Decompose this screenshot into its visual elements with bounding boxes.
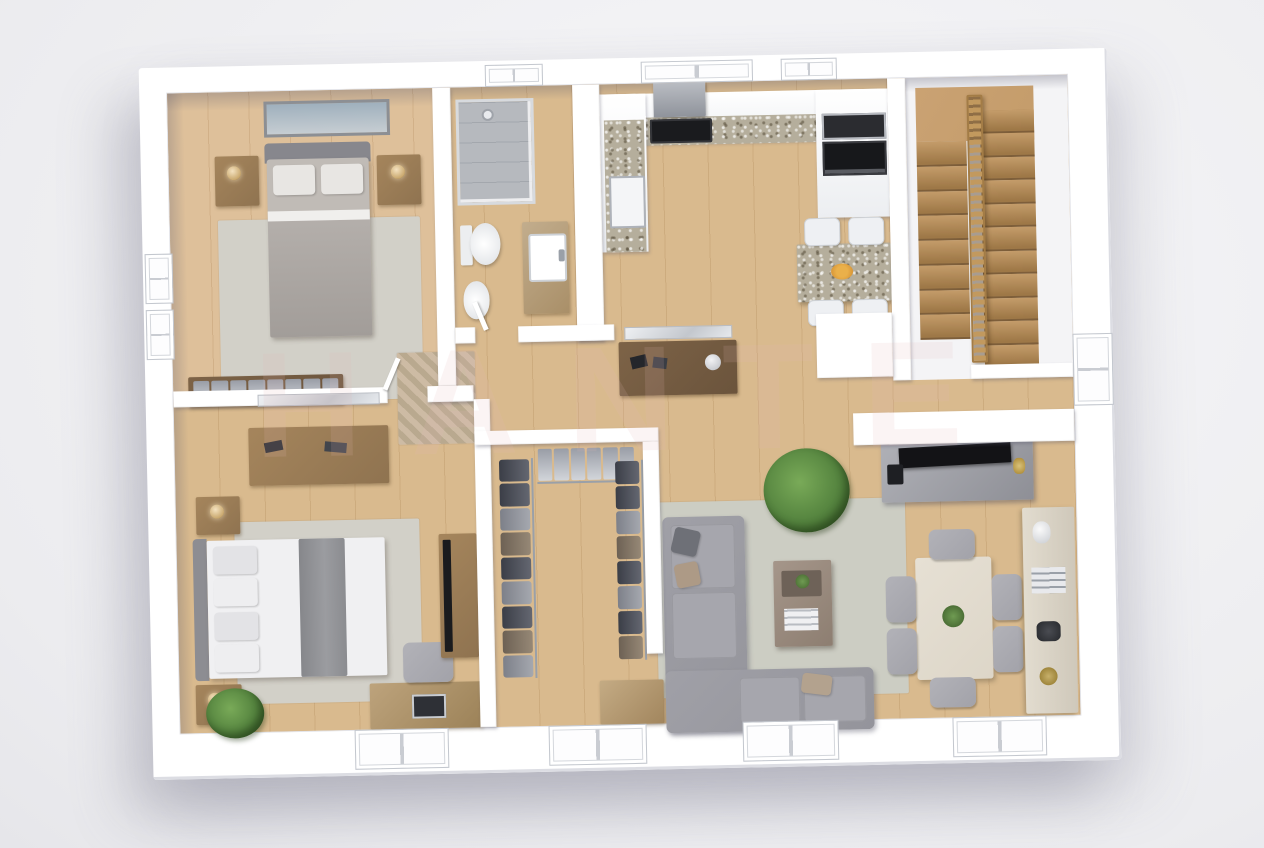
media-half-wall — [853, 409, 1075, 446]
cooktop — [650, 118, 712, 143]
wall-bathroom-kitchen — [572, 85, 604, 342]
dining-chair-left-2 — [887, 628, 918, 675]
sink-faucet — [559, 249, 565, 261]
sofa-cushion-3 — [740, 677, 801, 724]
bedroom1-nightstand-left — [215, 156, 260, 207]
sideboard-books — [1031, 567, 1066, 594]
window-bottom-master — [355, 728, 450, 770]
master-pillow-3 — [214, 612, 259, 641]
tv-speaker — [887, 464, 903, 484]
microwave — [822, 113, 887, 140]
sideboard-vase — [1032, 521, 1050, 543]
bedroom1-sheet-fold — [268, 209, 370, 221]
master-mirror — [258, 392, 380, 407]
kitchen-chair-1 — [804, 218, 841, 247]
window-top-bathroom — [485, 64, 543, 87]
window-top-kitchen-2 — [781, 58, 837, 81]
bedroom1-pillow-left — [273, 165, 316, 196]
master-throw-blanket — [299, 538, 348, 677]
window-left-1 — [145, 254, 174, 305]
oven — [822, 141, 887, 176]
floor-plan — [139, 48, 1122, 780]
master-dresser — [248, 425, 389, 486]
wall-kitchen-nook-stub — [816, 312, 893, 378]
window-bottom-living — [742, 720, 839, 762]
wall-bedroom1-bottom-2 — [427, 385, 473, 402]
closet-dresser — [600, 679, 665, 724]
sofa-cushion-2 — [672, 592, 737, 659]
corner-shower — [455, 98, 535, 206]
laptop — [412, 694, 446, 719]
hallway-mirror — [624, 325, 732, 340]
render-canvas: HANTE — [0, 0, 1264, 848]
wall-bathroom-bottom-2 — [518, 324, 614, 342]
dining-chair-top — [928, 529, 975, 560]
wall-bathroom-bottom-1 — [455, 327, 475, 343]
window-bottom-closet — [549, 724, 648, 766]
wall-picture — [263, 99, 390, 138]
tv-console-decor — [1013, 458, 1025, 474]
kitchen-sink — [609, 176, 646, 229]
floor-area — [167, 75, 1080, 734]
dining-chair-right-2 — [993, 626, 1024, 673]
window-top-kitchen — [641, 59, 753, 83]
range-hood — [653, 82, 706, 117]
sideboard-bowl — [1036, 621, 1060, 641]
bedroom1-pillow-right — [321, 164, 364, 195]
sofa-pillow-3 — [801, 672, 833, 695]
master-pillow-1 — [213, 546, 258, 575]
coffee-table-books — [784, 608, 818, 631]
closet-rail-right — [613, 460, 647, 661]
master-pillow-4 — [215, 644, 260, 673]
stair-flight-left — [916, 141, 970, 340]
window-left-2 — [146, 310, 175, 361]
exterior-door-right — [1072, 333, 1113, 406]
stair-flight-right — [980, 109, 1039, 368]
console-photo-frame-2 — [652, 357, 667, 370]
master-pillow-2 — [213, 578, 258, 607]
kitchen-chair-2 — [848, 217, 885, 246]
closet-rail-left — [497, 458, 538, 679]
sofa-pillow-2 — [673, 561, 701, 589]
bedroom1-nightstand-right — [377, 154, 422, 205]
wall-stairs-bottom — [971, 363, 1073, 379]
dining-chair-left-1 — [885, 576, 916, 623]
window-bottom-dining — [952, 715, 1047, 757]
bedroom1-duvet — [268, 209, 373, 337]
dresser-item-2 — [324, 441, 347, 453]
dining-chair-bottom — [930, 677, 977, 708]
dining-chair-right-1 — [991, 574, 1022, 621]
